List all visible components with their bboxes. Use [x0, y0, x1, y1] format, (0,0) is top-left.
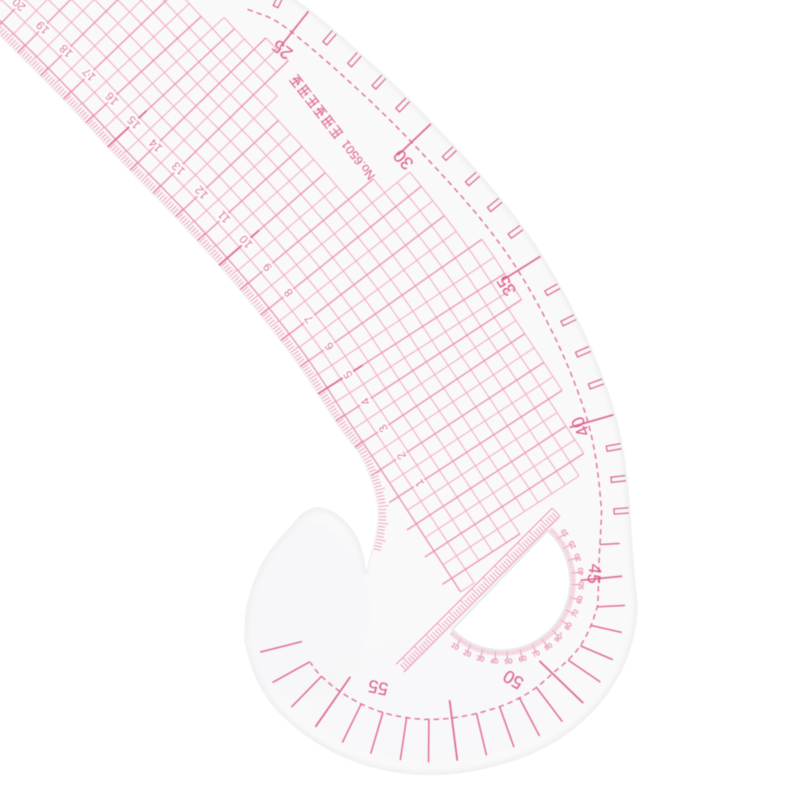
svg-text:40: 40 — [578, 567, 586, 576]
svg-text:55: 55 — [366, 676, 390, 700]
svg-text:50: 50 — [579, 582, 587, 590]
svg-text:50: 50 — [504, 658, 513, 666]
svg-text:40: 40 — [490, 658, 498, 666]
svg-text:45: 45 — [583, 563, 605, 585]
